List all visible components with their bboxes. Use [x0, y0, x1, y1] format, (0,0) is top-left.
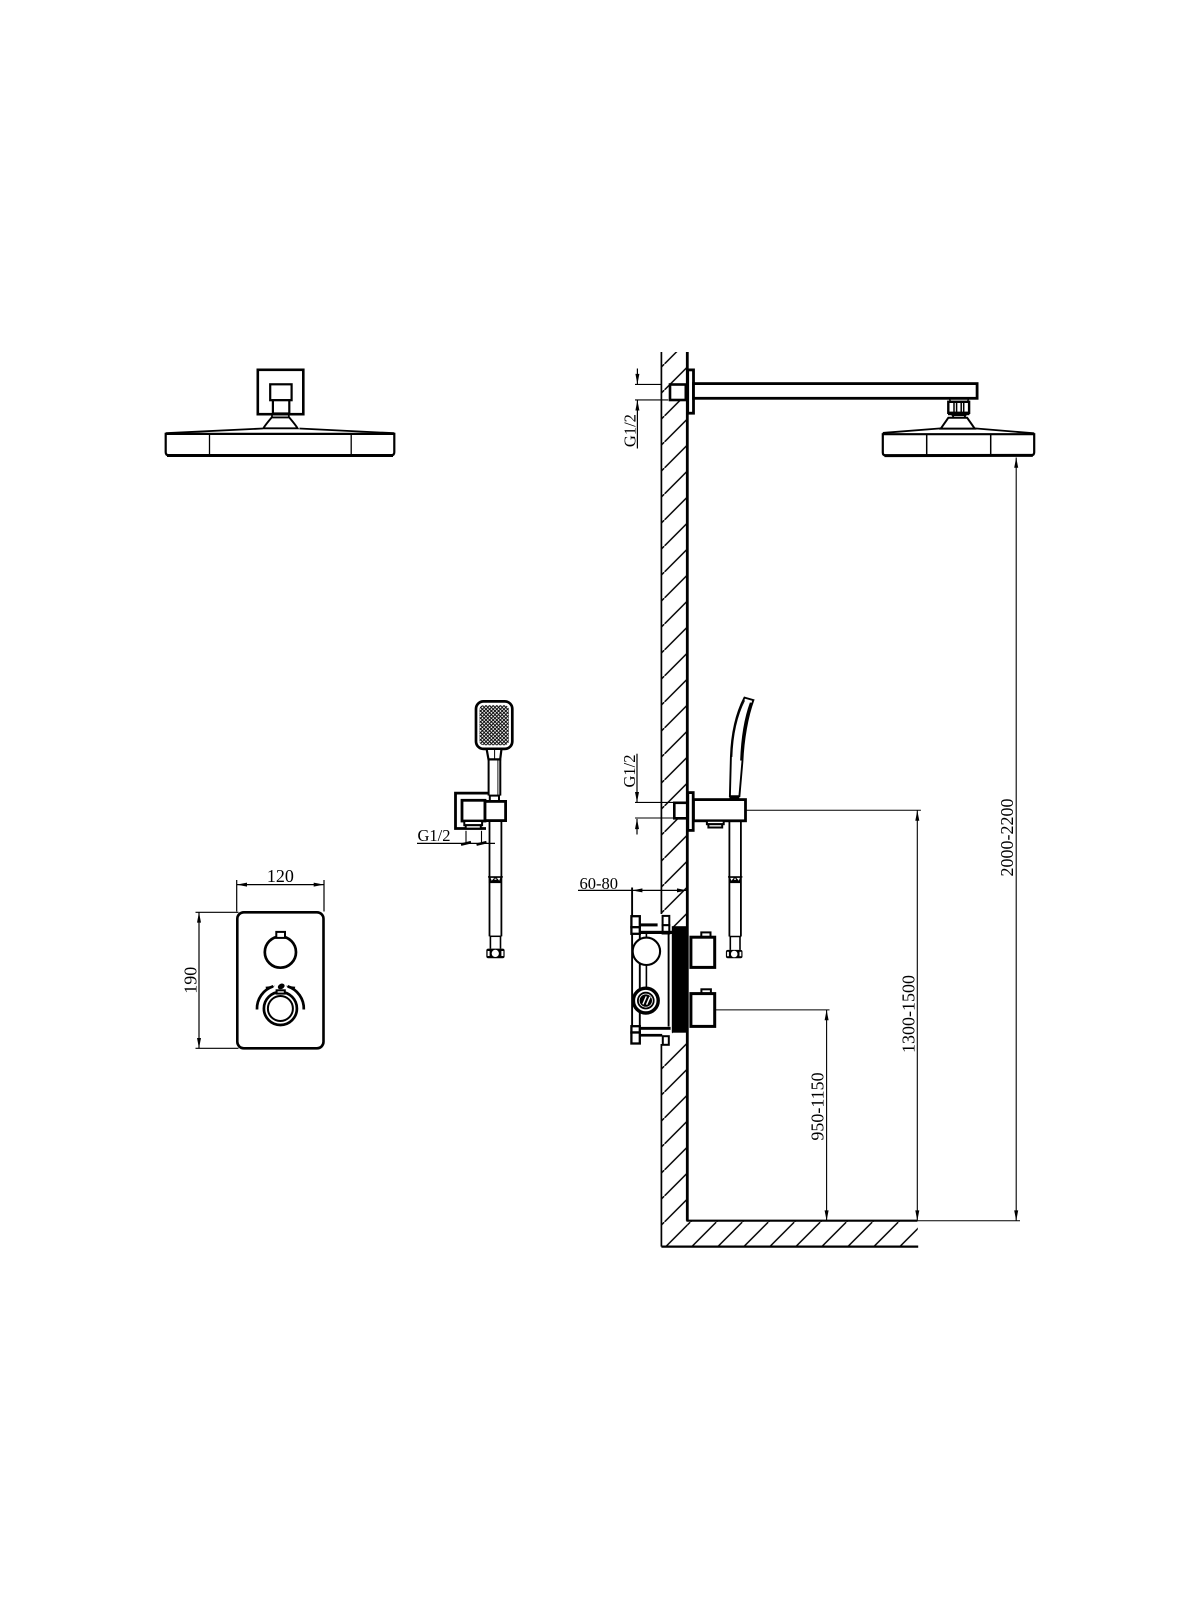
svg-text:120: 120	[267, 866, 294, 886]
svg-text:950-1150: 950-1150	[808, 1072, 828, 1140]
svg-text:G1/2: G1/2	[418, 826, 451, 845]
svg-text:G1/2: G1/2	[621, 414, 640, 447]
svg-text:2000-2200: 2000-2200	[997, 799, 1017, 877]
svg-text:1300-1500: 1300-1500	[898, 975, 918, 1053]
svg-text:190: 190	[181, 967, 201, 994]
svg-text:G1/2: G1/2	[620, 755, 639, 788]
